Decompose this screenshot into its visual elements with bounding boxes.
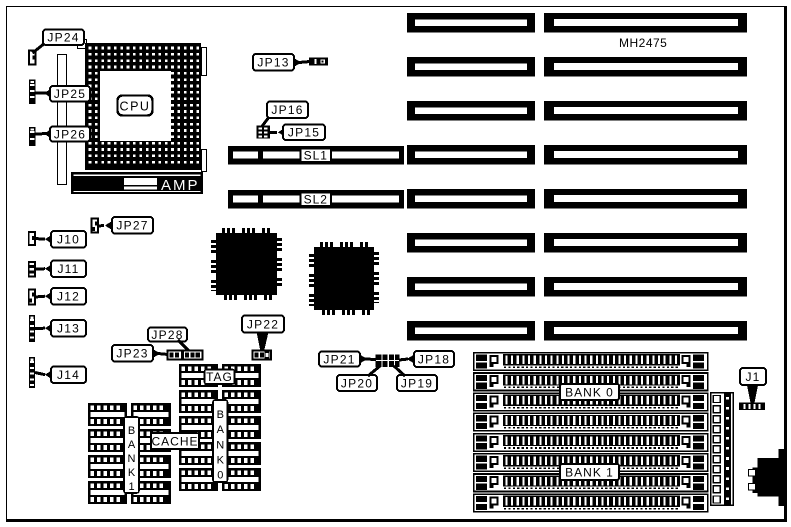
svg-text:JP23: JP23 [116, 347, 148, 361]
svg-text:J13: J13 [57, 322, 80, 336]
svg-text:B: B [128, 425, 135, 437]
svg-text:SL2: SL2 [304, 193, 328, 207]
svg-text:JP15: JP15 [288, 126, 320, 140]
svg-text:K: K [128, 467, 136, 479]
svg-text:J11: J11 [57, 262, 79, 276]
svg-text:J14: J14 [57, 368, 80, 382]
svg-text:JP26: JP26 [54, 127, 86, 141]
svg-text:JP25: JP25 [54, 87, 86, 101]
svg-text:JP21: JP21 [323, 352, 355, 366]
svg-text:CACHE: CACHE [151, 434, 198, 448]
svg-text:JP22: JP22 [247, 317, 279, 331]
svg-text:1: 1 [128, 481, 134, 493]
svg-text:A: A [128, 439, 136, 451]
svg-text:AMP: AMP [161, 177, 200, 194]
svg-text:CPU: CPU [120, 100, 151, 114]
svg-text:JP13: JP13 [257, 56, 289, 70]
svg-text:N: N [216, 439, 224, 451]
svg-text:JP27: JP27 [116, 219, 148, 233]
svg-text:J12: J12 [57, 290, 80, 304]
svg-text:JP19: JP19 [401, 376, 433, 390]
svg-text:MH2475: MH2475 [619, 36, 667, 50]
svg-text:JP20: JP20 [341, 376, 373, 390]
svg-text:A: A [217, 424, 225, 436]
svg-text:J10: J10 [57, 233, 80, 247]
svg-text:JP18: JP18 [418, 352, 450, 366]
svg-text:JP24: JP24 [47, 31, 79, 45]
svg-text:J1: J1 [745, 370, 760, 384]
svg-text:SL1: SL1 [304, 149, 328, 163]
svg-text:0: 0 [217, 470, 223, 482]
svg-text:BANK 1: BANK 1 [565, 465, 614, 479]
svg-text:JP16: JP16 [271, 103, 303, 117]
svg-text:BANK 0: BANK 0 [565, 385, 614, 399]
svg-text:TAG: TAG [206, 370, 233, 384]
svg-text:N: N [128, 453, 136, 465]
svg-text:K: K [217, 455, 225, 467]
svg-text:B: B [217, 409, 224, 421]
